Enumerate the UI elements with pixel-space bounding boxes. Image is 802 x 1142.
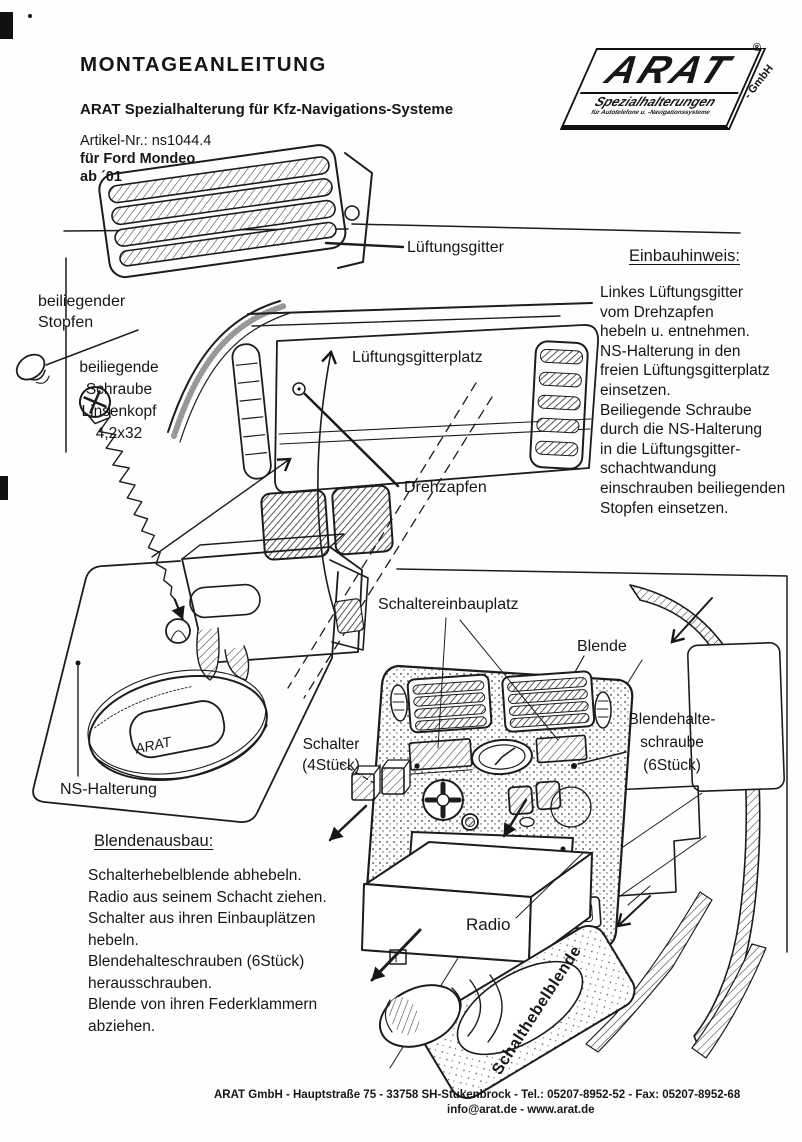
label-schaltereinbauplatz: Schaltereinbauplatz	[378, 594, 519, 615]
arat-logo-tagline: Spezialhalterungen	[571, 94, 740, 109]
einbauhinweis-heading: Einbauhinweis:	[629, 246, 740, 267]
label-drehzapfen: Drehzapfen	[404, 477, 487, 498]
article-year: ab ´01	[80, 167, 122, 188]
label-ns-halterung: NS-Halterung	[60, 779, 157, 800]
label-blende: Blende	[577, 636, 627, 657]
registered-mark: ®	[753, 42, 761, 54]
einbauhinweis-body: Linkes Lüftungsgitter vom Drehzapfen heb…	[600, 283, 802, 518]
label-lueftungsgitterplatz: Lüftungsgitterplatz	[352, 347, 483, 368]
blendenausbau-heading: Blendenausbau:	[94, 831, 213, 852]
manual-page: MONTAGEANLEITUNG ARAT Spezialhalterung f…	[0, 0, 802, 1142]
blendenausbau-body: Schalterhebelblende abhebeln. Radio aus …	[88, 865, 356, 1037]
label-lueftungsgitter: Lüftungsgitter	[407, 237, 504, 258]
label-schraube: beiliegende Schraube Linsenkopf 4,2x32	[66, 357, 172, 445]
footer-contact: info@arat.de - www.arat.de	[447, 1100, 595, 1121]
label-schalter: Schalter (4Stück)	[290, 734, 372, 776]
label-radio: Radio	[466, 914, 510, 935]
arat-logo-box: ARAT Spezialhalterungen für Autotelefone…	[560, 48, 767, 130]
label-blendehalteschraube: Blendehalte- schraube (6Stück)	[622, 708, 722, 777]
arat-logo: ARAT Spezialhalterungen für Autotelefone…	[578, 48, 748, 130]
page-title: MONTAGEANLEITUNG	[80, 54, 327, 75]
label-stopfen: beiliegender Stopfen	[38, 291, 125, 333]
arat-logo-brand: ARAT	[579, 50, 760, 92]
page-subtitle: ARAT Spezialhalterung für Kfz-Navigation…	[80, 99, 453, 120]
scan-artifacts	[0, 12, 32, 500]
arat-logo-subtagline: für Autotelefone u. -Navigationssysteme	[568, 109, 733, 116]
